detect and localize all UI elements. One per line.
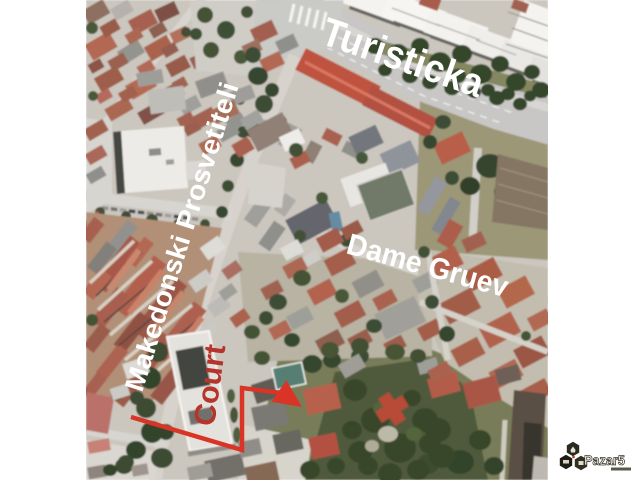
svg-text:Pazar5: Pazar5 [584, 452, 625, 468]
